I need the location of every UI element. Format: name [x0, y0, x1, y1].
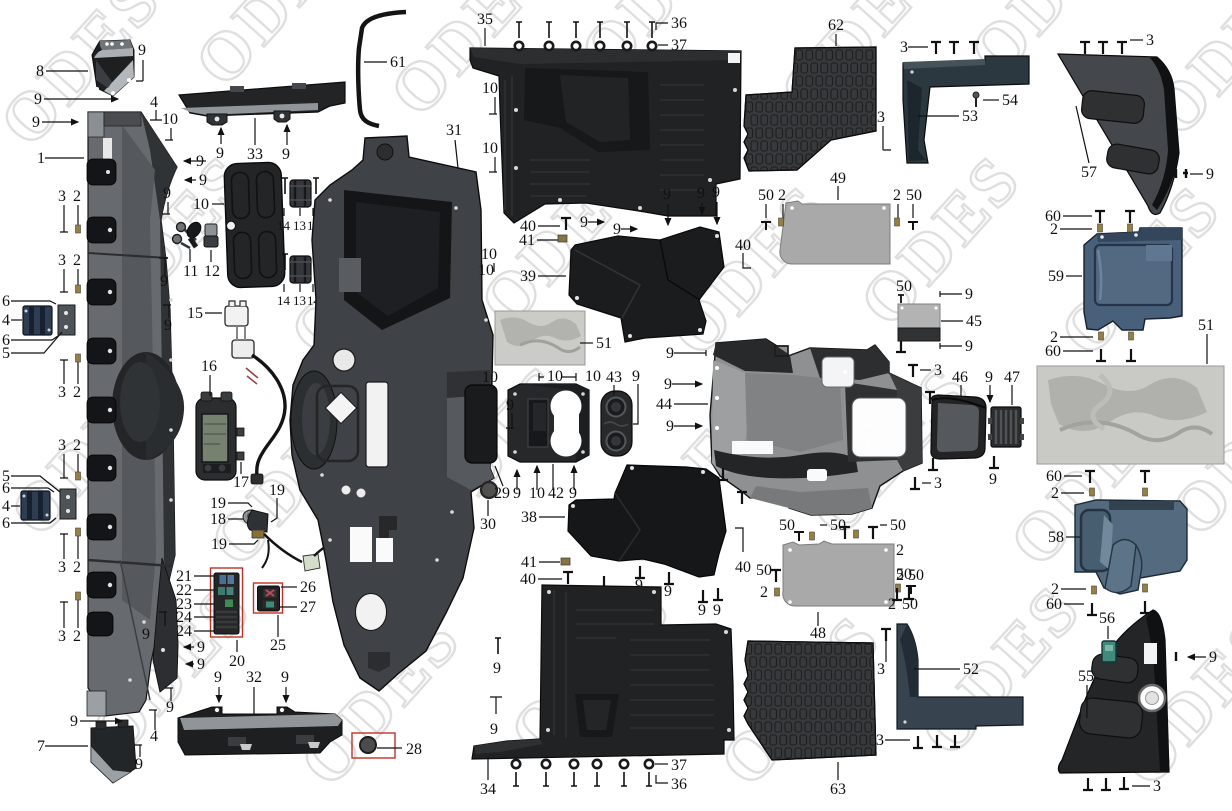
svg-text:28: 28 — [406, 741, 422, 758]
svg-text:3: 3 — [58, 437, 66, 454]
svg-text:3: 3 — [900, 39, 908, 56]
svg-text:40: 40 — [735, 559, 751, 576]
svg-text:2: 2 — [1051, 485, 1059, 502]
svg-text:29: 29 — [494, 485, 510, 502]
svg-text:38: 38 — [521, 509, 537, 526]
svg-text:50: 50 — [908, 567, 924, 584]
svg-text:9: 9 — [199, 172, 207, 189]
svg-text:62: 62 — [828, 17, 844, 34]
svg-text:41: 41 — [521, 554, 537, 571]
svg-text:33: 33 — [247, 146, 263, 163]
svg-text:9: 9 — [138, 42, 146, 59]
svg-text:10: 10 — [585, 368, 601, 385]
svg-text:3: 3 — [876, 732, 884, 749]
svg-text:5: 5 — [2, 345, 10, 362]
svg-text:24: 24 — [176, 623, 192, 640]
svg-text:6: 6 — [2, 480, 10, 497]
svg-text:2: 2 — [896, 567, 904, 584]
svg-text:50: 50 — [896, 278, 912, 295]
svg-text:9: 9 — [160, 273, 168, 290]
svg-text:3: 3 — [58, 559, 66, 576]
svg-text:9: 9 — [32, 114, 40, 131]
svg-text:25: 25 — [270, 637, 286, 654]
svg-text:15: 15 — [187, 305, 203, 322]
svg-text:58: 58 — [1048, 529, 1064, 546]
svg-text:63: 63 — [830, 781, 846, 798]
svg-text:26: 26 — [300, 579, 316, 596]
svg-text:2: 2 — [73, 188, 81, 205]
svg-text:12: 12 — [204, 263, 220, 280]
svg-text:50: 50 — [906, 187, 922, 204]
svg-text:2: 2 — [888, 596, 896, 613]
svg-text:60: 60 — [1045, 343, 1061, 360]
svg-text:50: 50 — [830, 517, 846, 534]
svg-text:9: 9 — [135, 756, 143, 773]
svg-text:9: 9 — [664, 583, 672, 600]
svg-text:9: 9 — [493, 660, 501, 677]
svg-text:59: 59 — [1048, 268, 1064, 285]
svg-text:45: 45 — [966, 313, 982, 330]
svg-text:9: 9 — [698, 602, 706, 619]
svg-text:53: 53 — [962, 108, 978, 125]
svg-text:11: 11 — [183, 263, 198, 280]
svg-text:19: 19 — [269, 482, 285, 499]
svg-text:17: 17 — [233, 474, 249, 491]
svg-text:9: 9 — [663, 186, 671, 203]
svg-text:32: 32 — [246, 669, 262, 686]
svg-text:40: 40 — [735, 237, 751, 254]
svg-text:9: 9 — [197, 639, 205, 656]
svg-text:35: 35 — [477, 11, 493, 28]
svg-text:3: 3 — [1153, 778, 1161, 795]
svg-text:27: 27 — [300, 599, 316, 616]
svg-text:9: 9 — [666, 418, 674, 435]
svg-text:10: 10 — [481, 246, 497, 263]
svg-text:3: 3 — [58, 628, 66, 645]
svg-text:9: 9 — [965, 286, 973, 303]
svg-text:4: 4 — [150, 94, 158, 111]
svg-text:2: 2 — [73, 252, 81, 269]
svg-text:6: 6 — [2, 515, 10, 532]
svg-text:54: 54 — [1002, 92, 1018, 109]
svg-text:9: 9 — [214, 669, 222, 686]
svg-text:37: 37 — [671, 757, 687, 774]
svg-text:3: 3 — [934, 362, 942, 379]
svg-text:3: 3 — [1146, 32, 1154, 49]
svg-text:8: 8 — [36, 63, 44, 80]
svg-text:55: 55 — [1078, 668, 1094, 685]
svg-text:2: 2 — [73, 628, 81, 645]
svg-text:2: 2 — [73, 384, 81, 401]
svg-text:9: 9 — [713, 602, 721, 619]
svg-text:2: 2 — [1050, 221, 1058, 238]
svg-text:50: 50 — [758, 187, 774, 204]
svg-text:16: 16 — [201, 358, 217, 375]
svg-text:19: 19 — [211, 536, 227, 553]
svg-text:50: 50 — [890, 517, 906, 534]
svg-text:9: 9 — [490, 721, 498, 738]
svg-text:9: 9 — [613, 221, 621, 238]
svg-text:61: 61 — [390, 54, 406, 71]
svg-text:2: 2 — [73, 559, 81, 576]
svg-text:1: 1 — [37, 150, 45, 167]
svg-text:9: 9 — [666, 345, 674, 362]
svg-text:60: 60 — [1046, 468, 1062, 485]
svg-text:50: 50 — [779, 517, 795, 534]
svg-text:49: 49 — [830, 170, 846, 187]
svg-text:10: 10 — [547, 368, 563, 385]
svg-text:9: 9 — [164, 317, 172, 334]
svg-text:9: 9 — [989, 471, 997, 488]
svg-text:36: 36 — [671, 776, 687, 793]
svg-text:41: 41 — [519, 232, 535, 249]
svg-text:9: 9 — [281, 669, 289, 686]
svg-text:9: 9 — [166, 699, 174, 716]
svg-text:9: 9 — [664, 376, 672, 393]
svg-text:4: 4 — [2, 498, 10, 515]
svg-text:9: 9 — [282, 146, 290, 163]
svg-text:9: 9 — [1206, 166, 1214, 183]
svg-text:9: 9 — [985, 369, 993, 386]
svg-text:10: 10 — [482, 80, 498, 97]
svg-text:3: 3 — [58, 252, 66, 269]
svg-text:9: 9 — [197, 656, 205, 673]
svg-text:43: 43 — [606, 369, 622, 386]
svg-text:3: 3 — [877, 109, 885, 126]
svg-text:10: 10 — [478, 262, 494, 279]
svg-text:9: 9 — [34, 91, 42, 108]
svg-text:50: 50 — [756, 562, 772, 579]
svg-text:3: 3 — [934, 475, 942, 492]
svg-text:10: 10 — [482, 369, 498, 386]
svg-text:34: 34 — [480, 781, 496, 798]
svg-text:18: 18 — [210, 511, 226, 528]
svg-text:42: 42 — [548, 485, 564, 502]
svg-text:2: 2 — [893, 187, 901, 204]
svg-text:9: 9 — [1209, 649, 1217, 666]
svg-text:10: 10 — [193, 196, 209, 213]
svg-text:19: 19 — [210, 495, 226, 512]
svg-text:2: 2 — [896, 542, 904, 559]
svg-text:9: 9 — [632, 368, 640, 385]
svg-text:40: 40 — [520, 571, 536, 588]
svg-text:3: 3 — [58, 384, 66, 401]
svg-text:9: 9 — [142, 626, 150, 643]
svg-text:9: 9 — [965, 338, 973, 355]
svg-text:13: 13 — [293, 293, 306, 308]
svg-text:57: 57 — [1081, 164, 1097, 181]
svg-text:2: 2 — [73, 437, 81, 454]
svg-text:36: 36 — [671, 15, 687, 32]
svg-text:7: 7 — [37, 738, 45, 755]
svg-text:37: 37 — [671, 37, 687, 54]
svg-text:20: 20 — [229, 653, 245, 670]
svg-text:9: 9 — [163, 185, 171, 202]
svg-text:39: 39 — [520, 268, 536, 285]
svg-text:13: 13 — [293, 218, 306, 233]
svg-text:4: 4 — [150, 728, 158, 745]
svg-text:56: 56 — [1099, 610, 1115, 627]
svg-text:14: 14 — [277, 218, 291, 233]
svg-text:51: 51 — [1198, 317, 1214, 334]
svg-text:2: 2 — [760, 584, 768, 601]
svg-text:52: 52 — [963, 661, 979, 678]
svg-text:46: 46 — [952, 369, 968, 386]
svg-text:9: 9 — [506, 397, 514, 414]
svg-text:51: 51 — [596, 335, 612, 352]
svg-text:14: 14 — [277, 293, 291, 308]
svg-text:4: 4 — [2, 312, 10, 329]
svg-text:48: 48 — [810, 625, 826, 642]
svg-text:60: 60 — [1046, 596, 1062, 613]
svg-text:30: 30 — [480, 516, 496, 533]
svg-text:47: 47 — [1004, 369, 1020, 386]
svg-text:44: 44 — [656, 396, 672, 413]
svg-text:31: 31 — [446, 122, 462, 139]
svg-text:9: 9 — [712, 184, 720, 201]
svg-text:9: 9 — [70, 713, 78, 730]
svg-text:9: 9 — [580, 214, 588, 231]
svg-text:2: 2 — [778, 187, 786, 204]
svg-text:3: 3 — [877, 661, 885, 678]
svg-text:9: 9 — [697, 185, 705, 202]
svg-text:9: 9 — [216, 145, 224, 162]
svg-text:6: 6 — [2, 293, 10, 310]
svg-text:10: 10 — [482, 140, 498, 157]
svg-text:10: 10 — [162, 111, 178, 128]
svg-text:3: 3 — [58, 188, 66, 205]
